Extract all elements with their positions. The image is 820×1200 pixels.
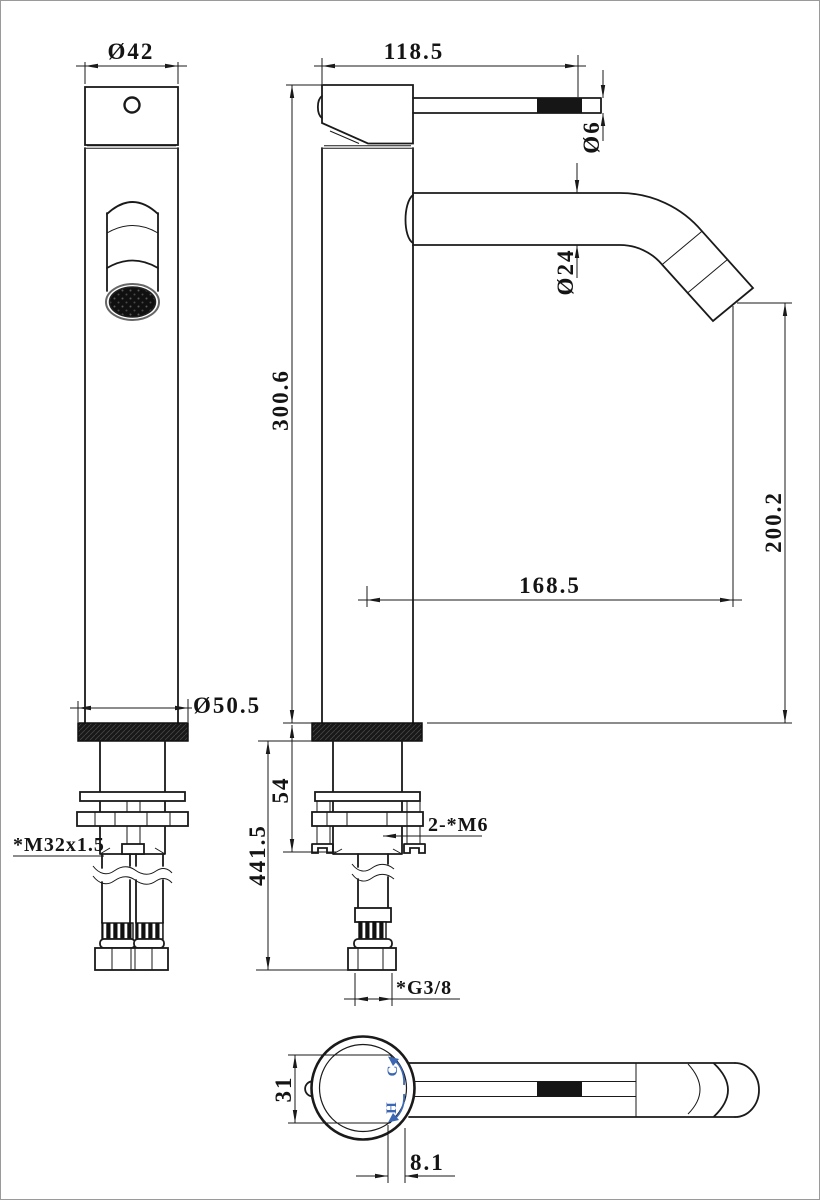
knurled-base-ring-front: [78, 723, 188, 741]
dim-label-fixing-studs: 2-*M6: [428, 814, 489, 836]
dim-label-body-height: 300.6: [268, 369, 293, 431]
faucet-technical-drawing: Ø42 Ø50.5: [0, 0, 820, 1200]
handle-grip: [537, 98, 582, 113]
drawing-sheet: Ø42 Ø50.5: [0, 0, 820, 1200]
dim-label-handle-base-width: 31: [271, 1076, 296, 1103]
lever-grip-top: [537, 1082, 582, 1097]
cold-indicator-label: C: [385, 1066, 401, 1077]
hose-nut-side: [348, 948, 396, 970]
hose-braid-left: [102, 923, 133, 939]
dim-label-deck-section: 54: [268, 777, 293, 804]
aerator-face: [110, 287, 156, 317]
dim-label-outlet-height: 200.2: [761, 491, 786, 553]
dim-label-rod-diameter: Ø6: [579, 120, 604, 153]
dim-label-inlet-thread: *G3/8: [396, 977, 452, 999]
dim-label-spout-diameter: Ø24: [553, 249, 578, 296]
dim-label-handle-length: 118.5: [384, 39, 444, 64]
label-base-thread: *M32x1.5: [13, 834, 105, 856]
hose-braid-right: [136, 923, 163, 939]
dim-label-spout-reach: 168.5: [519, 573, 581, 598]
dim-label-outlet-offset: 8.1: [410, 1150, 445, 1175]
hose-braid-side: [359, 922, 386, 939]
dim-label-base-thread: *M32x1.5: [13, 834, 105, 856]
hot-indicator-label: H: [384, 1102, 400, 1114]
dim-label-total-height: 441.5: [245, 824, 270, 886]
dim-label-top-diameter: Ø42: [108, 39, 155, 64]
body-circle-top: [312, 1037, 415, 1140]
dim-label-base-diameter: Ø50.5: [193, 693, 261, 718]
knurled-base-ring-side: [312, 723, 422, 741]
